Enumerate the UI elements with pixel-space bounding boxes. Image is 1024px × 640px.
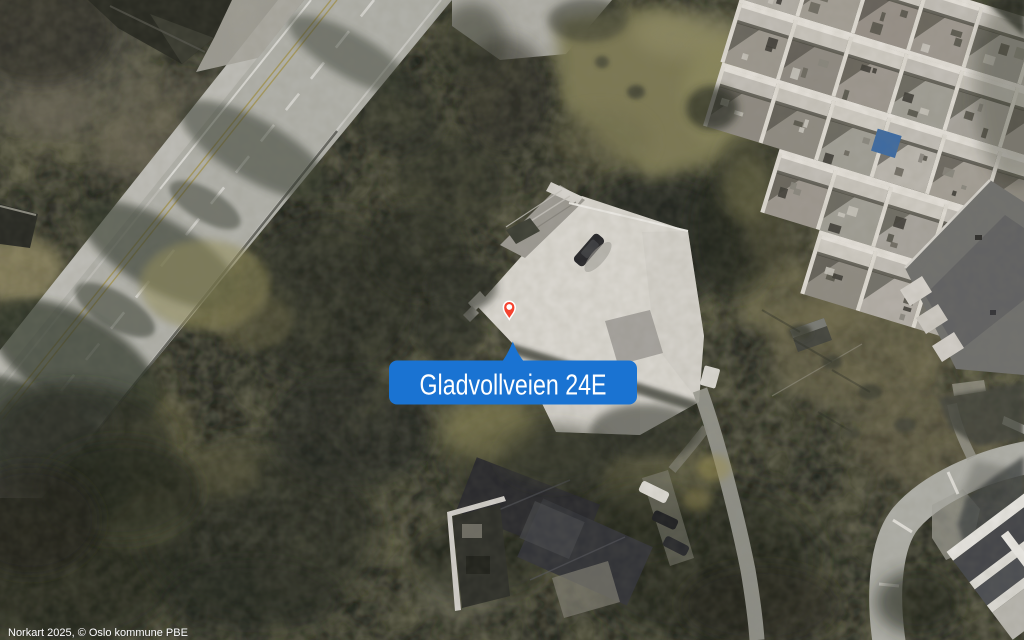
svg-text:Gladvollveien 24E: Gladvollveien 24E (420, 370, 607, 402)
svg-text:Norkart 2025, © Oslo kommune P: Norkart 2025, © Oslo kommune PBE (8, 627, 188, 639)
